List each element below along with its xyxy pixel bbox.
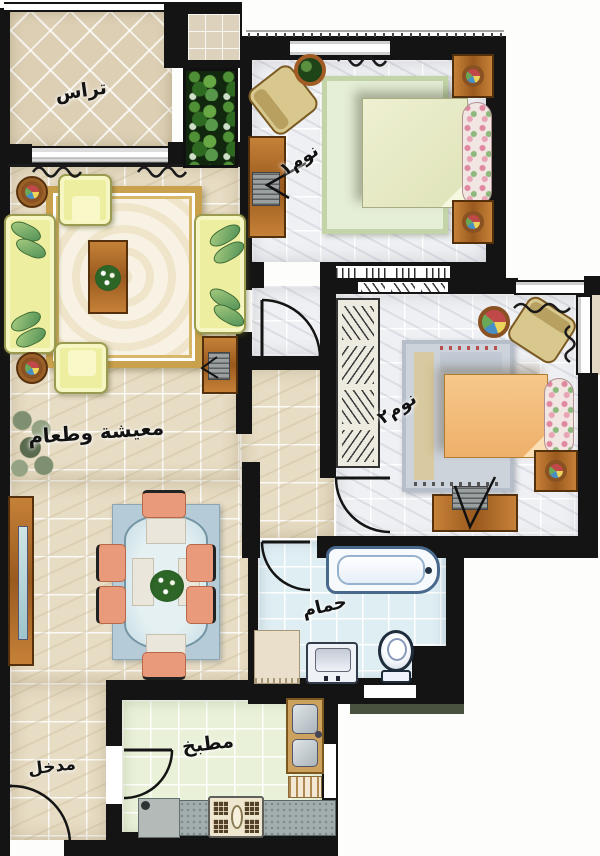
outside-ledge [592,295,600,375]
burner [213,801,228,815]
bathtub-drain [425,567,432,574]
wall-bedroom2-left [320,262,336,478]
floor-plan: تراس نوم١ معيشة وطعام نوم٢ حمام مطبخ مدخ… [0,0,600,856]
sink-basin [315,648,351,672]
dining-chair [186,544,216,582]
flower-dish [462,211,484,233]
bedroom2-desk-chair [452,486,488,510]
wardrobe-hatch [342,346,374,384]
bedroom2-wardrobe [336,298,380,468]
washer-knob [141,801,150,810]
armchair-seat [72,196,100,222]
toilet-seat [387,638,407,661]
bedroom1-plant-pot [294,54,326,86]
flower-dish [462,65,484,87]
placemat [146,518,186,544]
wall-bathroom-corner [412,646,448,680]
wall-entrance-bottom [64,840,118,856]
wall-corner-post [584,276,600,296]
dining-centerpiece [150,570,184,602]
side-table [16,176,48,208]
kitchen-sink-unit [286,698,324,774]
dining-chair [96,544,126,582]
rug-dots [440,346,502,350]
bedroom1-bed [362,98,468,208]
bedroom2-bolster-pillow [544,378,574,456]
armchair-bottom [54,342,108,394]
side-table [16,352,48,384]
bath-mat [254,630,300,684]
burner [244,819,259,833]
closet-hatch [391,283,415,292]
coffee-table [88,240,128,314]
terrace-planter [183,68,238,168]
kitchen-faucet [315,731,322,738]
bathroom-window [362,683,418,700]
living-desk-chair [208,352,230,380]
closet-hatch [421,283,445,292]
toilet-tank [381,670,411,683]
dining-chair [186,586,216,624]
closet-hatch [361,283,385,292]
kitchen-left-door-gap [106,746,122,804]
bedroom1-desk-chair [252,172,280,206]
rug-panel [440,352,502,372]
bedroom2-corner-window-right [576,295,592,375]
bedroom2-corner-window-top [514,280,586,295]
wardrobe-hatch [342,390,374,424]
washing-machine [138,798,180,838]
bathtub-well [337,555,425,585]
wall-kitchen-top [106,680,258,700]
terrace-sliding-door [30,146,170,164]
kitchen-sink-basin [292,739,318,767]
sink-tap [336,676,340,681]
kitchen-sink-basin [292,704,318,734]
mat-fringe [255,678,299,684]
armchair-seat [68,350,96,376]
wall-dining-hall [242,462,260,558]
flower-centerpiece [95,265,121,291]
drainboard [288,776,322,798]
sideboard [8,496,34,666]
flower-dish [545,460,567,482]
sink-tap [324,676,328,681]
bathtub [326,546,440,594]
decorative-plate [21,357,43,379]
toilet-bowl [378,630,414,672]
decorative-plate [21,181,43,203]
dining-chair [142,652,186,680]
stove-center-plate [231,805,243,829]
wall-bedroom2-right [578,373,598,558]
rug-panel [414,352,434,480]
bedroom2-top-closet [356,280,450,294]
wardrobe-hatch [342,306,374,340]
landing-step-top [188,14,240,60]
stove [208,796,264,838]
bedroom1-nightstand-bottom [452,200,494,244]
sideboard-glass [18,526,28,640]
armchair-top [58,174,112,226]
wardrobe-hatch [342,430,374,462]
bedroom2-plant-dish [478,306,510,338]
shadow-band [350,704,464,714]
wall-terrace-bottom-left [8,144,32,166]
bedroom2-nightstand [534,450,578,492]
bedroom1-nightstand-top [452,54,494,98]
burner [244,801,259,815]
bedroom1-bolster-pillow [462,102,492,206]
bathroom-sink [306,642,358,684]
kitchen-right-door [322,742,338,800]
dining-chair [96,586,126,624]
wall-living-right [236,332,252,434]
burner [213,819,228,833]
terrace-railing [4,2,168,12]
bedroom2-bed [444,374,548,458]
dining-chair [142,490,186,518]
